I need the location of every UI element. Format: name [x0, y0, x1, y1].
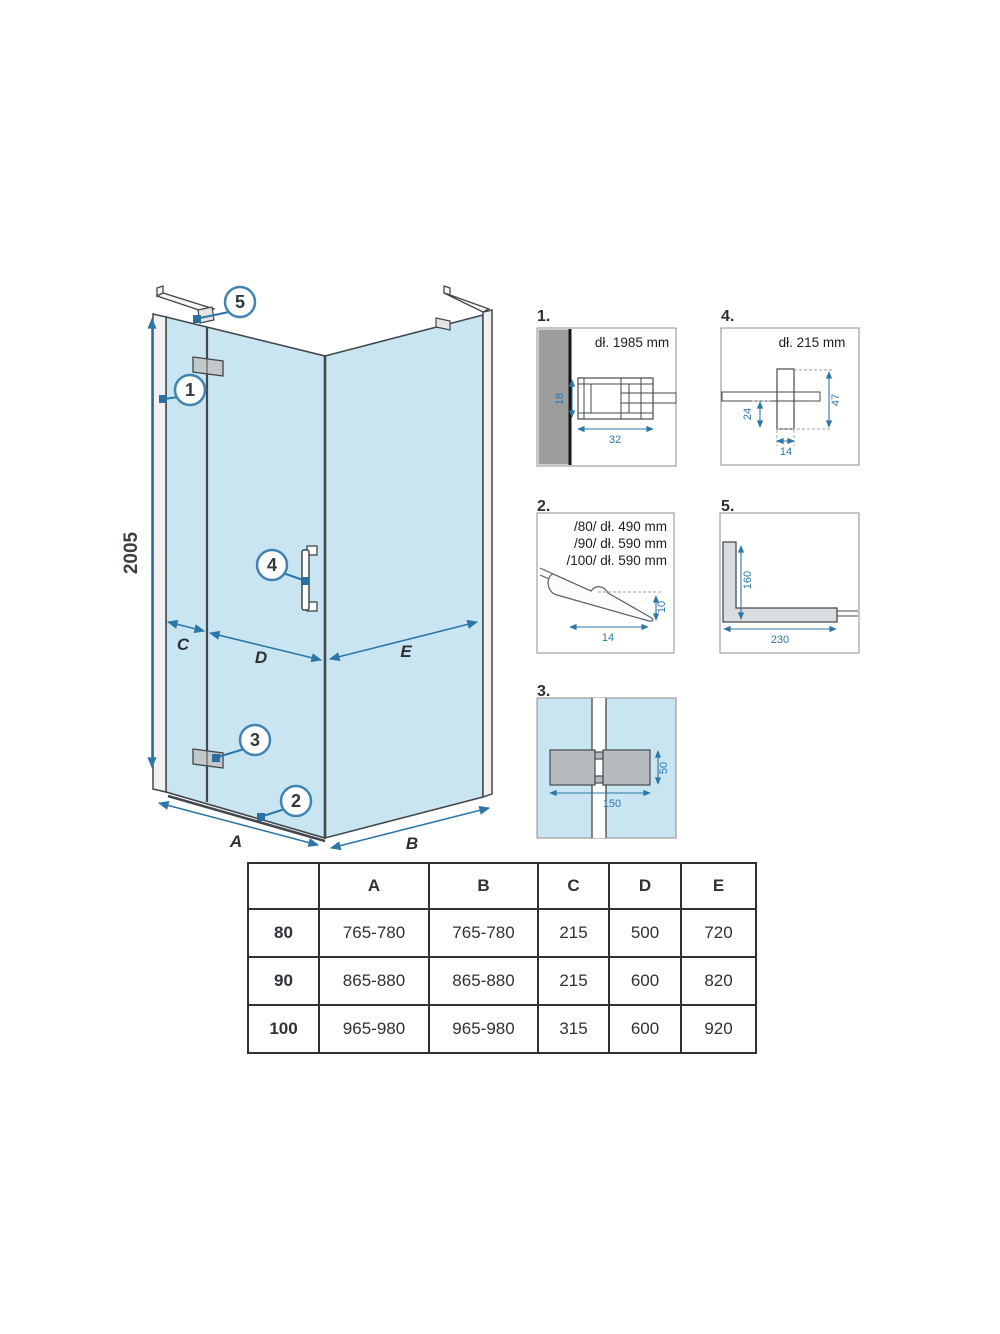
- detail-1-label: 1.: [537, 308, 550, 325]
- detail-2-label: 2.: [537, 498, 550, 515]
- detail-3-label: 3.: [537, 683, 550, 700]
- callout-3-number: 3: [250, 730, 260, 750]
- table-cell: 820: [681, 957, 756, 1005]
- table-row-90: 90 865-880 865-880 215 600 820: [248, 957, 756, 1005]
- table-cell: 920: [681, 1005, 756, 1053]
- table-cell: 865-880: [319, 957, 429, 1005]
- detail-2-note-90: /90/ dł. 590 mm: [574, 536, 667, 551]
- detail-2-note-80: /80/ dł. 490 mm: [574, 519, 667, 534]
- table-cell: 720: [681, 909, 756, 957]
- table-cell: 215: [538, 909, 609, 957]
- table-cell: 500: [609, 909, 681, 957]
- height-dimension: 2005: [121, 319, 152, 767]
- shower-enclosure-diagram: 2005 C D E A B 5 1 4: [0, 0, 1000, 1334]
- table-row-100: 100 965-980 965-980 315 600 920: [248, 1005, 756, 1053]
- callout-4-number: 4: [267, 555, 277, 575]
- table-cell: 600: [609, 1005, 681, 1053]
- table-cell: 965-980: [319, 1005, 429, 1053]
- table-cell: 315: [538, 1005, 609, 1053]
- table-cell: 215: [538, 957, 609, 1005]
- table-header-d: D: [609, 863, 681, 909]
- table-header-b: B: [429, 863, 538, 909]
- hinge-top: [193, 357, 223, 376]
- top-support-bar-right: [444, 293, 489, 312]
- table-header-e: E: [681, 863, 756, 909]
- main-drawing: 2005 C D E A B 5 1 4: [121, 286, 492, 853]
- detail-3-dim150: 150: [603, 798, 621, 810]
- table-header-blank: [248, 863, 319, 909]
- table-cell: 765-780: [429, 909, 538, 957]
- detail-5-label: 5.: [721, 498, 734, 515]
- height-dimension-label: 2005: [121, 531, 142, 574]
- row-label: 90: [248, 957, 319, 1005]
- detail-1: 1. dł. 1985 mm 18 32: [537, 308, 676, 466]
- table-header-c: C: [538, 863, 609, 909]
- detail-4-dim47: 47: [830, 394, 842, 406]
- detail-5-dim230: 230: [771, 634, 789, 646]
- callout-5-number: 5: [235, 292, 245, 312]
- detail-4-label: 4.: [721, 308, 734, 325]
- table-header-row: A B C D E: [248, 863, 756, 909]
- detail-1-dim32: 32: [609, 434, 621, 446]
- dim-e-label: E: [400, 642, 412, 661]
- detail-2-dim14: 14: [602, 632, 614, 644]
- table-cell: 765-780: [319, 909, 429, 957]
- dim-a-label: A: [229, 832, 242, 851]
- dim-c-label: C: [177, 635, 190, 654]
- detail-4-note: dł. 215 mm: [779, 335, 846, 350]
- right-glass-panel: [325, 315, 483, 838]
- table-header-a: A: [319, 863, 429, 909]
- right-wall-profile: [483, 310, 492, 797]
- wall-profile: [153, 314, 166, 792]
- detail-2-dim10: 10: [656, 601, 668, 613]
- row-label: 100: [248, 1005, 319, 1053]
- detail-4-dim14: 14: [780, 446, 792, 458]
- detail-3-dim50: 50: [658, 762, 670, 774]
- detail-2: 2. /80/ dł. 490 mm /90/ dł. 590 mm /100/…: [537, 498, 674, 653]
- size-table: A B C D E 80 765-780 765-780 215 500 720…: [247, 862, 757, 1054]
- detail-5-dim160: 160: [742, 571, 754, 589]
- table-cell: 600: [609, 957, 681, 1005]
- detail-2-note-100: /100/ dł. 590 mm: [566, 553, 667, 568]
- table-cell: 865-880: [429, 957, 538, 1005]
- dim-b-label: B: [406, 834, 418, 853]
- dim-d-label: D: [255, 648, 267, 667]
- dimensions-table: A B C D E 80 765-780 765-780 215 500 720…: [247, 862, 757, 1054]
- detail-4-dim24: 24: [742, 408, 754, 420]
- technical-drawing-page: 2005 C D E A B 5 1 4: [0, 0, 1000, 1334]
- callout-1-number: 1: [185, 380, 195, 400]
- table-cell: 965-980: [429, 1005, 538, 1053]
- detail-4: 4. dł. 215 mm 47 24 14: [721, 308, 859, 465]
- table-row-80: 80 765-780 765-780 215 500 720: [248, 909, 756, 957]
- detail-5: 5. 160 230: [720, 498, 859, 653]
- detail-3: 3. 50 150: [537, 683, 676, 838]
- detail-1-dim18: 18: [554, 393, 566, 405]
- detail-1-note: dł. 1985 mm: [595, 335, 669, 350]
- callout-2-number: 2: [291, 791, 301, 811]
- row-label: 80: [248, 909, 319, 957]
